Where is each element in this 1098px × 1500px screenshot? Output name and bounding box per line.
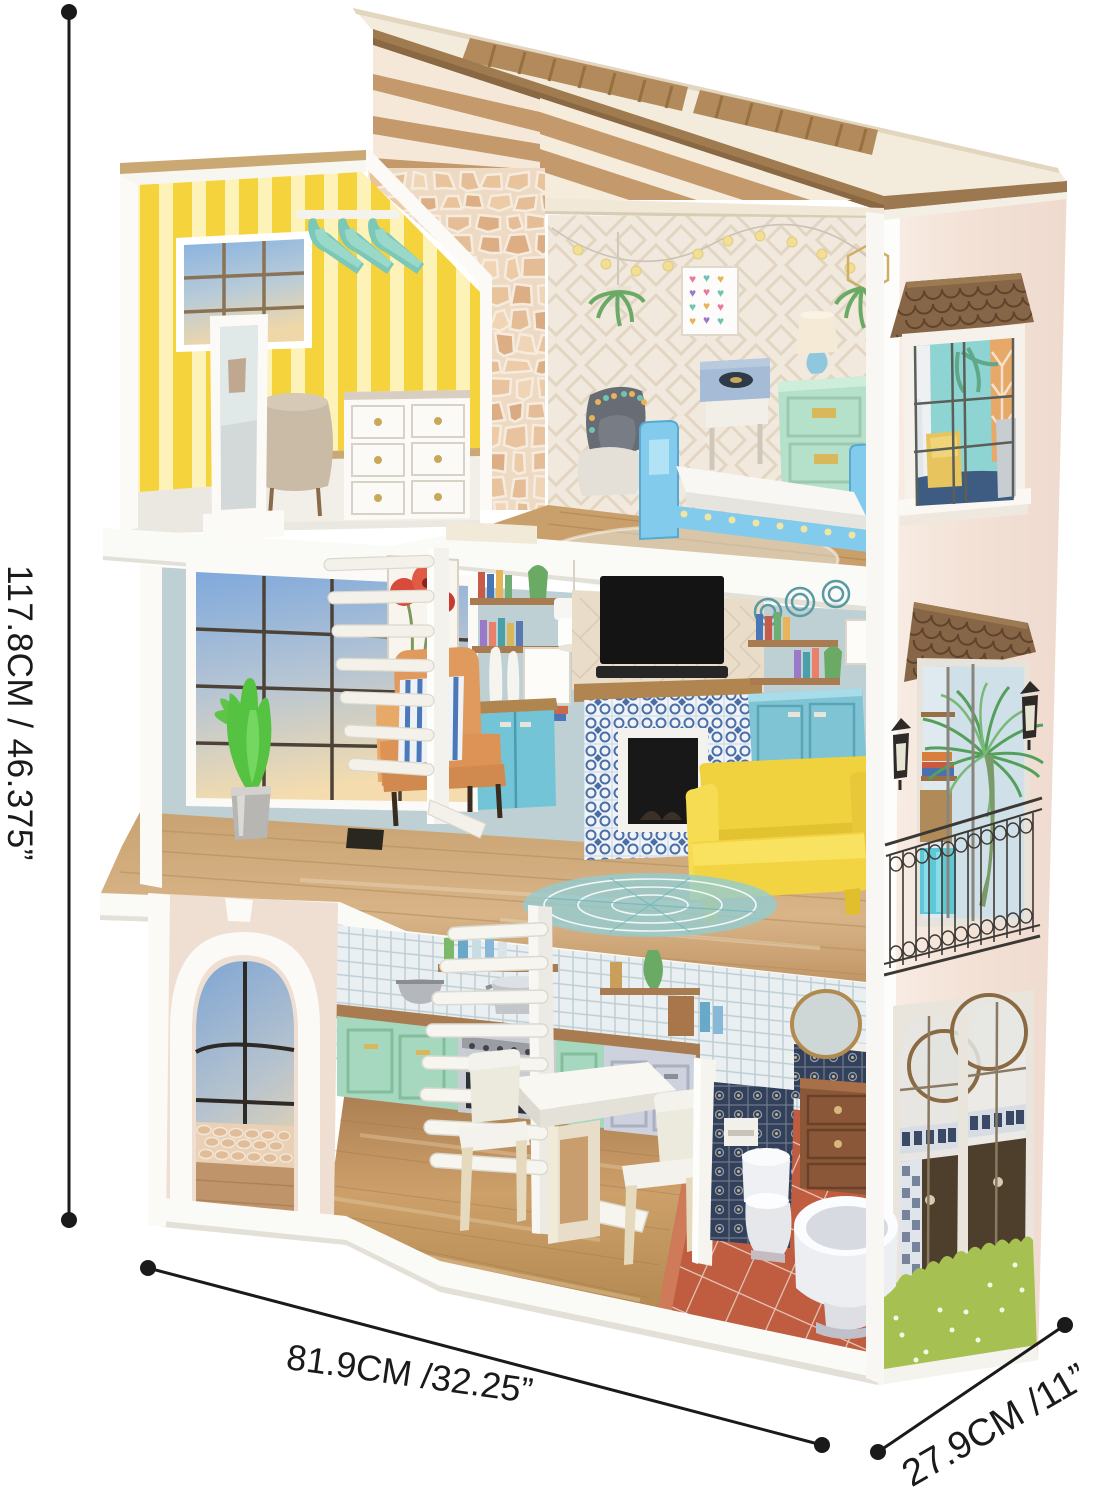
svg-text:♥: ♥ bbox=[717, 286, 724, 300]
svg-text:♥: ♥ bbox=[717, 272, 724, 286]
svg-text:♥: ♥ bbox=[717, 314, 724, 328]
svg-text:♥: ♥ bbox=[689, 272, 696, 286]
svg-text:♥: ♥ bbox=[689, 314, 696, 328]
svg-text:♥: ♥ bbox=[703, 285, 710, 299]
svg-text:♥: ♥ bbox=[703, 271, 710, 285]
svg-text:117.8CM / 46.375”: 117.8CM / 46.375” bbox=[0, 565, 39, 861]
svg-text:♥: ♥ bbox=[703, 299, 710, 313]
svg-text:♥: ♥ bbox=[689, 286, 696, 300]
svg-text:♥: ♥ bbox=[689, 300, 696, 314]
svg-text:♥: ♥ bbox=[703, 313, 710, 327]
svg-text:♥: ♥ bbox=[717, 300, 724, 314]
